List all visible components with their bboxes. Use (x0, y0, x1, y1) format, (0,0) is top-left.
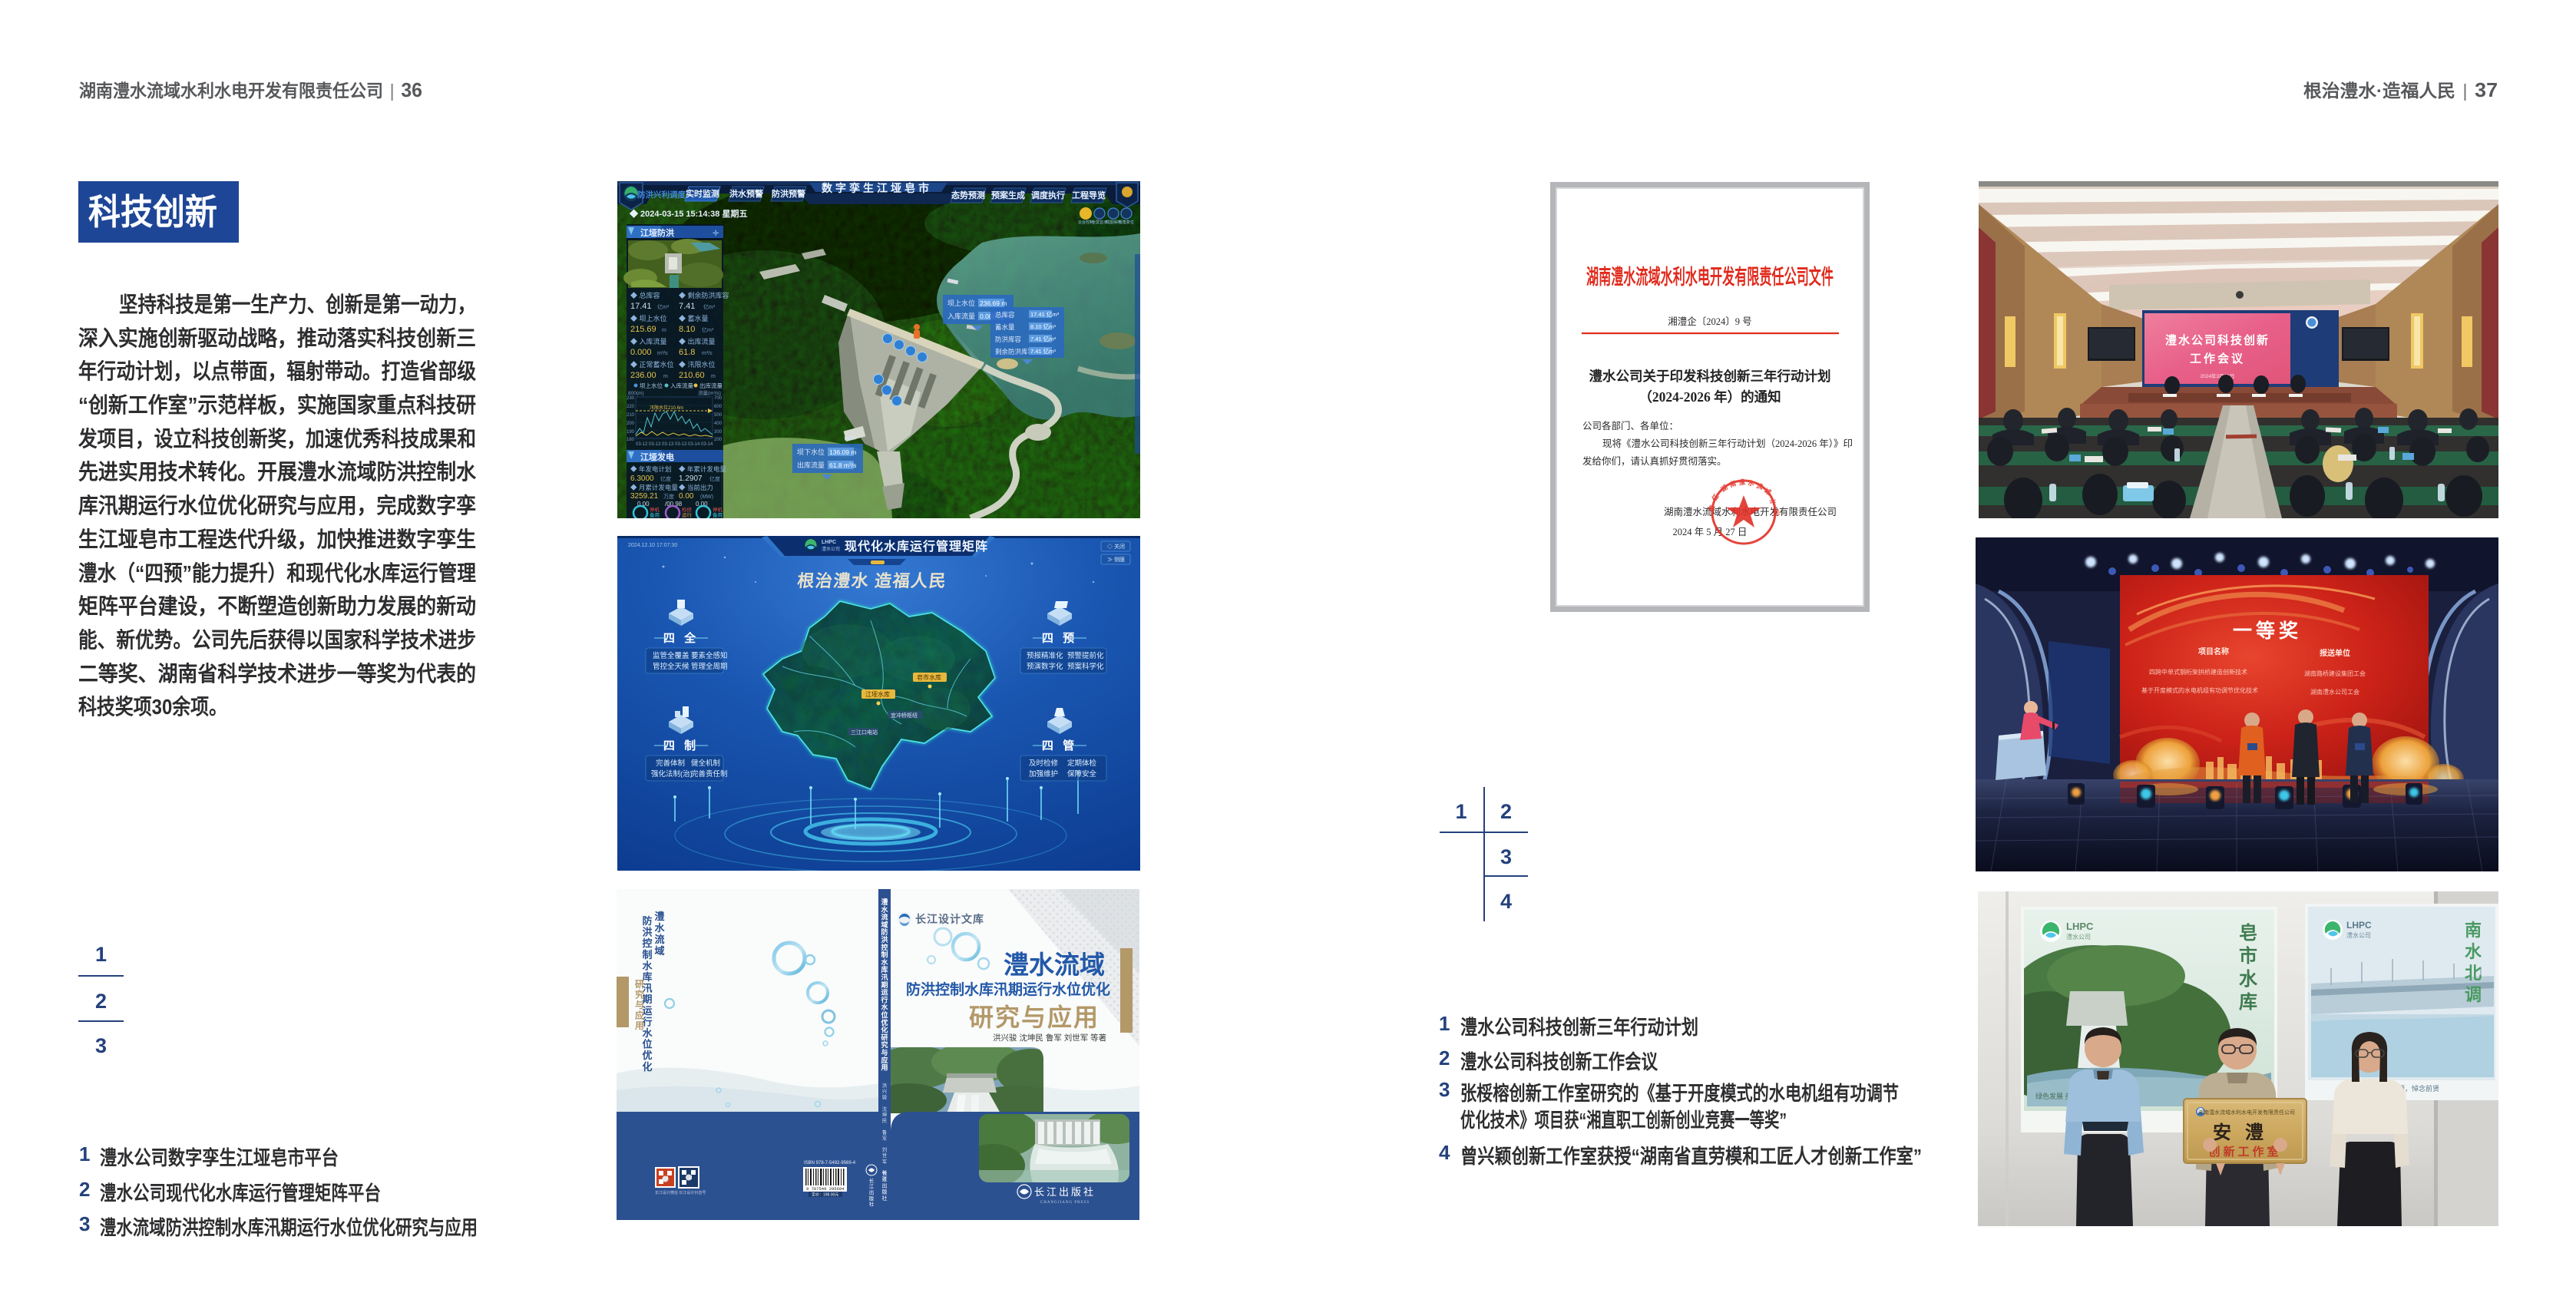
svg-text:四跨中单式钢桁架拱桥建造创新技术: 四跨中单式钢桁架拱桥建造创新技术 (2149, 668, 2247, 676)
svg-text:一等奖: 一等奖 (2233, 620, 2302, 642)
svg-text:◇ 关闭: ◇ 关闭 (1107, 543, 1125, 550)
svg-text:210: 210 (627, 413, 635, 418)
svg-text:基于开度模式的水电机组有功调节优化技术: 基于开度模式的水电机组有功调节优化技术 (2141, 686, 2258, 694)
svg-text:2024.12.10 17:07:30: 2024.12.10 17:07:30 (628, 543, 677, 548)
svg-text:出库流量: 出库流量 (699, 382, 723, 389)
svg-text:洪水预警: 洪水预警 (729, 188, 763, 199)
svg-text:数字孪生江垭皂市: 数字孪生江垭皂市 (822, 182, 932, 194)
svg-text:坝上水位: 坝上水位 (947, 299, 975, 307)
svg-text:出库流量: 出库流量 (797, 461, 825, 469)
svg-text:0.000: 0.000 (630, 348, 652, 357)
svg-text:定价：198.00元: 定价：198.00元 (812, 1192, 838, 1198)
svg-text:长江出版社: 长江出版社 (869, 1177, 875, 1207)
svg-text:m³/s: m³/s (657, 351, 668, 356)
svg-text:澧水公司: 澧水公司 (822, 546, 840, 552)
svg-text:61.8 m³/s: 61.8 m³/s (829, 461, 856, 469)
svg-text:四 管: 四 管 (1042, 739, 1077, 752)
svg-text:运行: 运行 (682, 511, 693, 518)
svg-text:蓄水量: 蓄水量 (995, 323, 1015, 331)
svg-text:500: 500 (714, 413, 723, 418)
svg-text:入库流量: 入库流量 (670, 382, 693, 389)
svg-text:澧水流域防洪控制水库汛期运行水位优化研究与应用: 澧水流域防洪控制水库汛期运行水位优化研究与应用 (880, 898, 888, 1072)
svg-text:三江口电站: 三江口电站 (851, 729, 878, 736)
svg-text:3259.21: 3259.21 (630, 492, 659, 501)
svg-text:236.69 m: 236.69 m (980, 299, 1007, 307)
svg-text:公司各部门、各单位：: 公司各部门、各单位： (1582, 420, 1678, 431)
svg-text:坝下水位: 坝下水位 (797, 448, 825, 456)
svg-text:◆ 总库容: ◆ 总库容 (630, 291, 660, 299)
svg-text:视角复位: 视角复位 (1119, 220, 1134, 225)
svg-text:17.41 亿m³: 17.41 亿m³ (1030, 310, 1060, 318)
svg-text:亿m³: 亿m³ (702, 326, 714, 333)
svg-text:亿度: 亿度 (660, 475, 671, 482)
svg-text:洪兴骏 沈坤民 鲁军 刘世军 等著: 洪兴骏 沈坤民 鲁军 刘世军 等著 (993, 1033, 1106, 1043)
svg-text:停机: 停机 (650, 506, 660, 513)
svg-text:◆ 当前出力: ◆ 当前出力 (679, 484, 713, 491)
svg-text:检修: 检修 (682, 506, 693, 513)
svg-text:安澧: 安澧 (2213, 1122, 2277, 1143)
svg-text:湖南路桥建设集团工会: 湖南路桥建设集团工会 (2304, 670, 2366, 677)
svg-text:LHPC: LHPC (2346, 920, 2372, 931)
svg-text:江垭防洪: 江垭防洪 (640, 227, 674, 238)
svg-text:要素全感知: 要素全感知 (691, 651, 728, 660)
svg-text:LHPC: LHPC (822, 540, 836, 545)
svg-text:6.3000: 6.3000 (630, 474, 654, 483)
svg-text:◆ 出库流量: ◆ 出库流量 (679, 337, 716, 346)
svg-text:完善体制: 完善体制 (656, 759, 685, 768)
svg-text:9 787549 295694: 9 787549 295694 (806, 1186, 845, 1192)
svg-text:2024 年 5 月 27 日: 2024 年 5 月 27 日 (1673, 527, 1748, 537)
svg-text:03-14: 03-14 (688, 442, 700, 447)
svg-text:澧水流域: 澧水流域 (1004, 951, 1105, 979)
svg-text:03-13: 03-13 (675, 442, 687, 447)
svg-text:◆ 入库流量: ◆ 入库流量 (630, 337, 667, 346)
svg-text:汛限水位210.6m: 汛限水位210.6m (650, 405, 683, 411)
svg-text:监管全覆盖: 监管全覆盖 (653, 651, 689, 660)
svg-text:及时检修: 及时检修 (1029, 759, 1059, 768)
svg-text:700: 700 (714, 396, 723, 401)
svg-text:工程导览: 工程导览 (1072, 190, 1106, 200)
svg-text:入库流量: 入库流量 (947, 312, 975, 320)
svg-text:300: 300 (714, 430, 723, 435)
svg-text:400: 400 (714, 422, 723, 426)
svg-text:◆ 月累计发电量: ◆ 月累计发电量 (630, 484, 678, 491)
svg-text:防洪兴利调度: 防洪兴利调度 (637, 190, 686, 200)
svg-text:◆ 2024-03-15 15:14:38 星期五: ◆ 2024-03-15 15:14:38 星期五 (629, 208, 747, 219)
svg-text:136.09 m: 136.09 m (829, 448, 856, 456)
svg-text:m: m (711, 374, 716, 379)
svg-text:保障安全: 保障安全 (1067, 769, 1097, 779)
svg-text:200: 200 (714, 438, 723, 442)
svg-text:600: 600 (714, 405, 723, 409)
svg-text:江垭水库: 江垭水库 (865, 690, 890, 698)
svg-text:215.69: 215.69 (630, 325, 656, 334)
svg-text:江垭发电: 江垭发电 (640, 451, 674, 462)
svg-text:800(m): 800(m) (628, 391, 644, 396)
svg-text:190: 190 (627, 430, 635, 435)
svg-text:≫ 侧膜: ≫ 侧膜 (1107, 556, 1125, 563)
svg-text:1.2907: 1.2907 (679, 474, 703, 483)
svg-text:备用: 备用 (650, 511, 660, 518)
svg-text:◆ 正常蓄水位: ◆ 正常蓄水位 (630, 360, 674, 369)
svg-text:✛: ✛ (713, 230, 719, 238)
svg-text:防洪库容: 防洪库容 (995, 336, 1022, 343)
svg-text:澧水公司: 澧水公司 (2066, 933, 2091, 941)
svg-text:工作会议: 工作会议 (2190, 352, 2245, 365)
svg-text:m: m (663, 374, 668, 379)
svg-text:备用: 备用 (713, 511, 723, 518)
svg-text:四 制: 四 制 (663, 739, 699, 752)
svg-text:长江出版社: 长江出版社 (1034, 1186, 1096, 1198)
svg-text:完善责任制: 完善责任制 (691, 769, 728, 779)
svg-text:项目名称: 项目名称 (2198, 646, 2229, 656)
svg-text:宜冲桥枢纽: 宜冲桥枢纽 (891, 712, 918, 719)
svg-text:236.00: 236.00 (630, 371, 656, 380)
svg-text:停机: 停机 (713, 506, 723, 513)
svg-text:220: 220 (627, 405, 635, 409)
svg-text:流量(m³/s): 流量(m³/s) (698, 389, 721, 396)
svg-text:发给你们，请认真抓好贯彻落实。: 发给你们，请认真抓好贯彻落实。 (1582, 455, 1727, 467)
svg-text:四 预: 四 预 (1042, 632, 1077, 645)
svg-text:03-13: 03-13 (662, 442, 674, 447)
svg-text:LHPC: LHPC (2066, 921, 2094, 932)
svg-text:健全机制: 健全机制 (691, 759, 720, 768)
svg-text:长江设计文库: 长江设计文库 (915, 913, 984, 925)
svg-text:湖南澧水流域水利水电开发有限责任公司: 湖南澧水流域水利水电开发有限责任公司 (2198, 1109, 2295, 1116)
svg-text:强化法制(治): 强化法制(治) (651, 769, 693, 779)
svg-text:亿度: 亿度 (709, 475, 720, 482)
svg-text:现将《澧水公司科技创新三年行动计划（2024-2026 年）: 现将《澧水公司科技创新三年行动计划（2024-2026 年）》印 (1602, 438, 1853, 449)
svg-text:澧水流域: 澧水流域 (654, 911, 665, 957)
svg-text:（2024-2026 年）的通知: （2024-2026 年）的通知 (1639, 389, 1781, 405)
svg-text:210.60: 210.60 (679, 371, 705, 380)
svg-text:加强维护: 加强维护 (1029, 769, 1058, 779)
svg-text:230: 230 (627, 396, 635, 401)
svg-text:0.00: 0.00 (679, 492, 694, 501)
svg-text:态势预测: 态势预测 (951, 190, 985, 200)
svg-text:预演数字化: 预演数字化 (1027, 662, 1063, 671)
svg-text:03-12: 03-12 (636, 442, 648, 447)
svg-text:皂市水库: 皂市水库 (917, 673, 941, 681)
svg-text:7.41 亿m³: 7.41 亿m³ (1030, 335, 1056, 342)
svg-text:总库容: 总库容 (995, 311, 1015, 319)
svg-text:长江设计微信 长江设计抖音号: 长江设计微信 长江设计抖音号 (655, 1190, 706, 1195)
svg-text:管控全天候: 管控全天候 (653, 662, 689, 671)
svg-text:防洪预警: 防洪预警 (772, 188, 805, 199)
svg-text:◆ 剩余防洪库容: ◆ 剩余防洪库容 (679, 291, 729, 299)
svg-text:预案生成: 预案生成 (991, 190, 1025, 200)
svg-text:180: 180 (627, 438, 635, 442)
svg-text:报送单位: 报送单位 (2320, 648, 2350, 658)
svg-text:实时监测: 实时监测 (686, 188, 719, 199)
svg-text:定期体检: 定期体检 (1067, 759, 1097, 768)
svg-text:预警提前化: 预警提前化 (1067, 651, 1104, 660)
svg-text:◆ 坝上水位: ◆ 坝上水位 (630, 314, 667, 322)
svg-text:03-14: 03-14 (701, 442, 713, 447)
svg-text:湖南澧水流域水利水电开发有限责任公司文件: 湖南澧水流域水利水电开发有限责任公司文件 (1586, 265, 1834, 289)
svg-text:亿m³: 亿m³ (657, 303, 670, 310)
svg-text:03-13: 03-13 (649, 442, 661, 447)
svg-text:7.41: 7.41 (679, 302, 695, 311)
svg-text:湖南澧水公司工会: 湖南澧水公司工会 (2310, 688, 2359, 696)
svg-text:CHANGJIANG PRESS: CHANGJIANG PRESS (1040, 1201, 1090, 1205)
svg-text:研究与应用: 研究与应用 (969, 1003, 1100, 1031)
svg-text:m: m (662, 328, 666, 333)
svg-text:m³/s: m³/s (702, 351, 713, 356)
svg-text:调度执行: 调度执行 (1031, 190, 1065, 200)
svg-text:预案科学化: 预案科学化 (1067, 662, 1104, 671)
svg-text:创新工作室: 创新工作室 (2207, 1145, 2281, 1159)
svg-text:7.41 亿m³: 7.41 亿m³ (1030, 347, 1056, 355)
svg-text:61.8: 61.8 (679, 348, 695, 357)
svg-text:剩余防洪库容: 剩余防洪库容 (995, 348, 1035, 355)
svg-text:(MW): (MW) (700, 494, 713, 500)
svg-text:8.10: 8.10 (679, 325, 695, 334)
svg-text:亿m³: 亿m³ (703, 303, 716, 310)
svg-text:◆ 年发电计划: ◆ 年发电计划 (630, 465, 671, 473)
svg-text:8.10 亿m³: 8.10 亿m³ (1030, 322, 1056, 330)
svg-text:澧水公司: 澧水公司 (2346, 931, 2371, 939)
svg-text:澧水公司科技创新: 澧水公司科技创新 (2165, 333, 2270, 347)
svg-text:现代化水库运行管理矩阵: 现代化水库运行管理矩阵 (845, 539, 988, 554)
svg-text:ISBN 978-7-5492-9569-4: ISBN 978-7-5492-9569-4 (804, 1161, 856, 1165)
svg-text:200: 200 (627, 422, 635, 426)
svg-text:预报精准化: 预报精准化 (1027, 651, 1063, 660)
svg-text:◆ 汛限水位: ◆ 汛限水位 (679, 360, 716, 369)
svg-text:防洪控制水库汛期运行水位优化: 防洪控制水库汛期运行水位优化 (906, 980, 1110, 998)
svg-text:万度: 万度 (663, 493, 674, 500)
svg-text:水: 水 (1747, 479, 1754, 487)
svg-text:坝上水位: 坝上水位 (640, 382, 663, 389)
svg-text:17.41: 17.41 (630, 302, 652, 311)
svg-text:四 全: 四 全 (663, 631, 699, 645)
svg-text:研究与应用: 研究与应用 (634, 979, 644, 1031)
svg-text:长江出版社: 长江出版社 (882, 1169, 888, 1202)
svg-text:根治澧水 造福人民: 根治澧水 造福人民 (796, 571, 948, 590)
svg-text:澧水公司关于印发科技创新三年行动计划: 澧水公司关于印发科技创新三年行动计划 (1589, 369, 1831, 384)
svg-text:湘澧企〔2024〕9 号: 湘澧企〔2024〕9 号 (1668, 316, 1751, 327)
svg-text:◆ 年累计发电量: ◆ 年累计发电量 (679, 465, 726, 473)
svg-text:◆ 蓄水量: ◆ 蓄水量 (679, 314, 709, 322)
svg-text:管理全周期: 管理全周期 (691, 662, 728, 671)
